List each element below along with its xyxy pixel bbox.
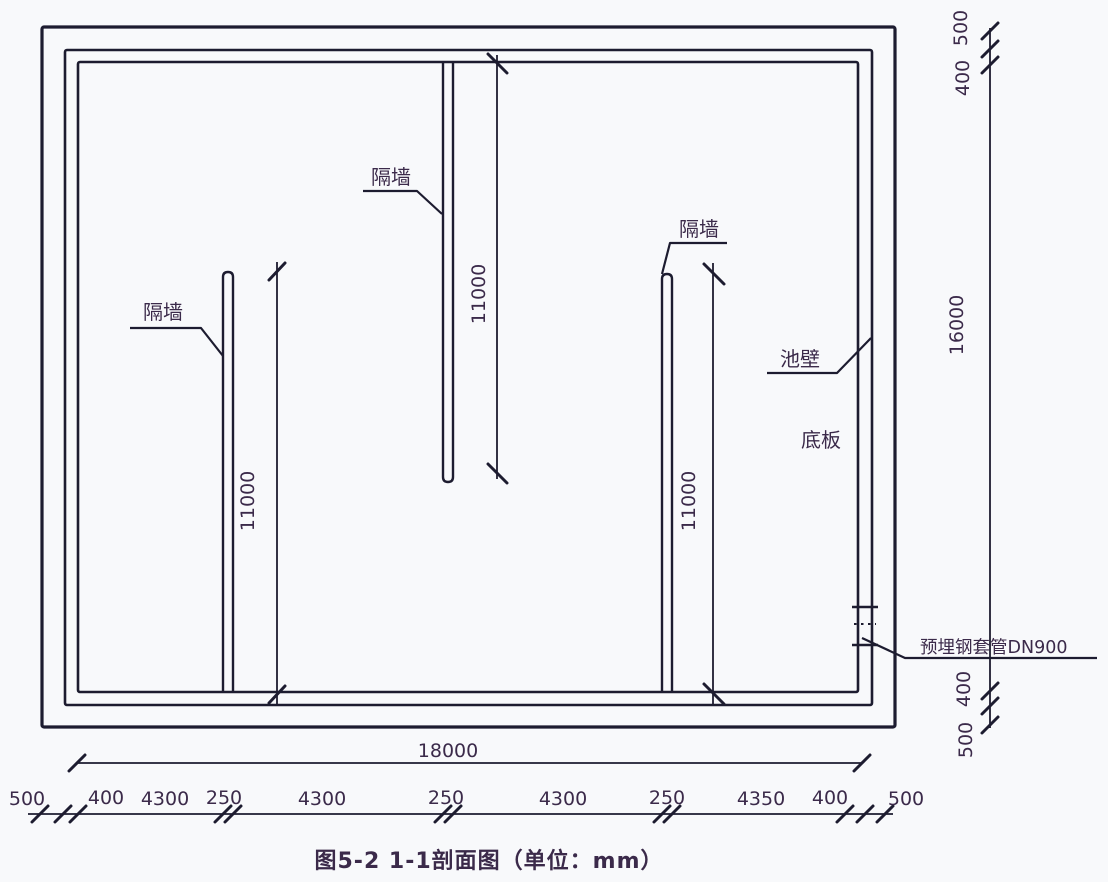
partition-middle-leader <box>363 191 442 214</box>
dim-right-top-wall: 400 <box>952 60 974 96</box>
bottom-dimension-chain: 500 400 4300 250 4300 250 4300 250 4350 … <box>9 787 924 822</box>
annotation-leaders: 隔墙 隔墙 隔墙 池壁 底板 <box>130 165 871 452</box>
partition-wall-middle <box>443 62 453 482</box>
partition-left-label: 隔墙 <box>143 300 183 324</box>
chain-label-9: 400 <box>812 787 848 809</box>
base-slab-label: 底板 <box>801 428 841 452</box>
dim-right-bottom-slab: 500 <box>955 722 977 758</box>
figure-caption: 图5-2 1-1剖面图（单位：mm） <box>315 848 664 874</box>
partition-middle-label: 隔墙 <box>371 165 411 189</box>
partition-wall-right <box>662 274 672 692</box>
embedded-sleeve-detail: 预埋钢套管DN900 <box>852 607 1097 658</box>
base-slab-outline <box>42 27 895 727</box>
partition-wall-left <box>223 272 233 692</box>
chain-label-5: 250 <box>428 787 464 809</box>
partition-right-label: 隔墙 <box>679 217 719 241</box>
dim-right-top-slab: 500 <box>950 10 972 46</box>
partition-left-leader <box>130 328 223 356</box>
dim-left-partition-height: 11000 <box>237 471 259 531</box>
chain-label-3: 250 <box>206 787 242 809</box>
drawing-canvas: 预埋钢套管DN900 隔墙 隔墙 隔墙 池壁 底板 11000 11000 11… <box>0 0 1108 882</box>
chain-label-2: 4300 <box>141 788 189 810</box>
section-drawing-svg: 预埋钢套管DN900 隔墙 隔墙 隔墙 池壁 底板 11000 11000 11… <box>0 0 1108 882</box>
dim-right-bottom-wall: 400 <box>953 671 975 707</box>
dim-inner-height: 16000 <box>946 295 968 355</box>
chain-label-10: 500 <box>888 788 924 810</box>
dim-right-partition-height: 11000 <box>678 471 700 531</box>
pool-wall-label: 池壁 <box>780 347 820 371</box>
embedded-sleeve-label: 预埋钢套管DN900 <box>920 638 1067 658</box>
overall-width-dimension: 18000 <box>69 740 870 771</box>
partition-dimensions: 11000 11000 11000 <box>237 54 724 704</box>
partition-right-leader <box>662 243 727 274</box>
chain-label-6: 4300 <box>539 788 587 810</box>
chain-label-7: 250 <box>649 787 685 809</box>
pool-wall-outer-face <box>65 50 872 705</box>
chain-label-0: 500 <box>9 788 45 810</box>
tick <box>704 684 724 704</box>
tank-structure <box>42 27 895 727</box>
dim-middle-partition-height: 11000 <box>468 264 490 324</box>
chain-label-1: 400 <box>88 787 124 809</box>
tick <box>704 264 724 284</box>
dim-inner-width: 18000 <box>418 740 478 762</box>
chain-label-4: 4300 <box>298 788 346 810</box>
chain-label-8: 4350 <box>737 788 785 810</box>
pool-wall-inner-face <box>78 62 858 692</box>
